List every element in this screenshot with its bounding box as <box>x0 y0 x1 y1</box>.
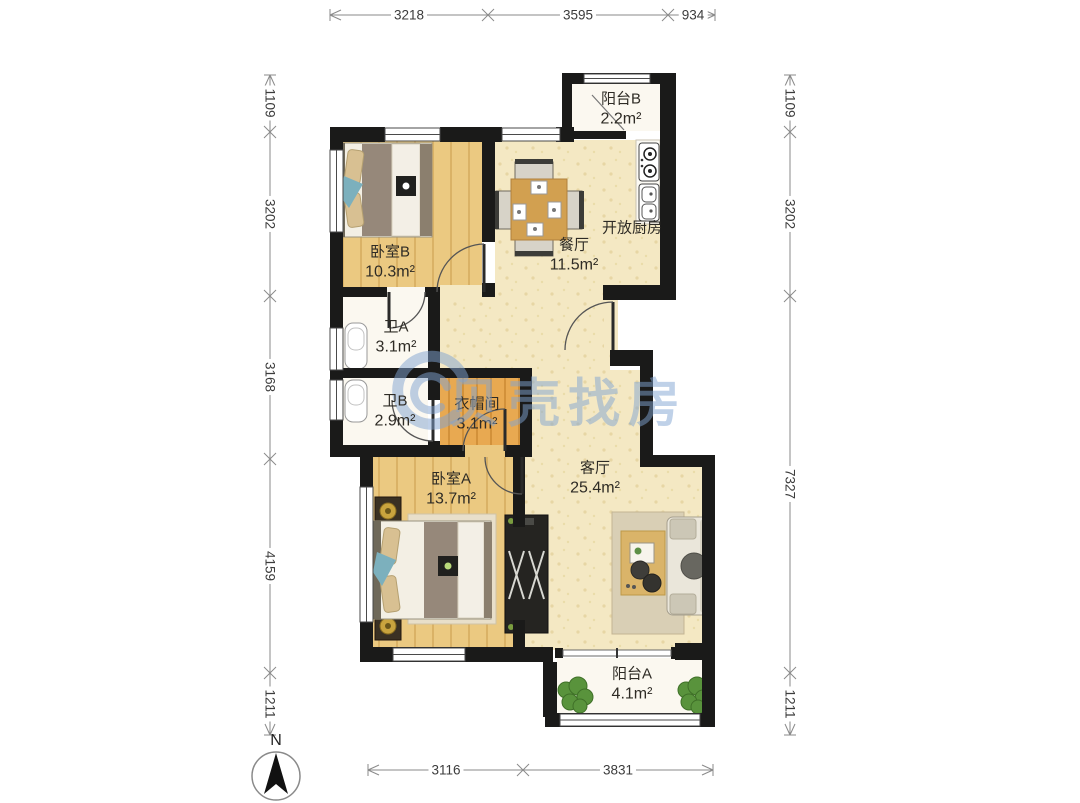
room-area: 2.9m² <box>375 411 416 431</box>
doorway-patch <box>604 300 618 350</box>
doorway-patch <box>387 287 425 297</box>
room-name: 卧室B <box>365 244 415 263</box>
dim-right-3: 7327 <box>783 466 798 502</box>
room-area: 13.7m² <box>426 489 476 509</box>
room-label-living: 客厅 25.4m² <box>570 460 620 499</box>
compass <box>252 752 300 800</box>
window <box>385 128 440 141</box>
room-label-dining: 餐厅 11.5m² <box>550 237 599 276</box>
room-area: 10.3m² <box>365 262 415 282</box>
dim-left-1: 1109 <box>263 85 278 120</box>
room-name: 开放厨房 <box>602 220 662 239</box>
room-name: 卫A <box>376 319 417 338</box>
dim-chain-bottom <box>368 764 713 776</box>
dim-chain-left <box>264 75 276 735</box>
window <box>360 487 373 622</box>
room-area: 2.2m² <box>601 109 642 129</box>
dim-right-4: 1211 <box>783 686 798 721</box>
stove <box>639 143 659 181</box>
dim-top-3: 934 <box>679 8 708 23</box>
room-name: 餐厅 <box>550 237 599 256</box>
bed-bedroom-a <box>373 497 496 640</box>
dim-left-5: 1211 <box>263 686 278 721</box>
doorway-patch <box>440 287 482 297</box>
room-name: 阳台A <box>612 666 653 685</box>
dim-top-1: 3218 <box>391 8 427 23</box>
bed-bedroom-b <box>337 143 432 237</box>
window <box>393 648 465 661</box>
window <box>502 128 560 141</box>
dim-top-2: 3595 <box>560 8 596 23</box>
room-name: 卫B <box>375 393 416 412</box>
dim-right-2: 3202 <box>783 196 798 232</box>
dim-bottom-2: 3831 <box>600 763 636 778</box>
room-label-bedroom-b: 卧室B 10.3m² <box>365 244 415 283</box>
sliding-door-sill <box>563 648 671 658</box>
dim-left-3: 3168 <box>263 359 278 395</box>
compass-north-label: N <box>270 732 282 750</box>
window <box>330 380 343 420</box>
floor-hall <box>440 285 610 373</box>
room-label-bath-a: 卫A 3.1m² <box>376 319 417 358</box>
room-label-balcony-a: 阳台A 4.1m² <box>612 666 653 705</box>
sink <box>639 184 659 221</box>
window <box>584 74 650 83</box>
room-label-balcony-b: 阳台B 2.2m² <box>601 91 642 130</box>
watermark-text: 贝壳找房 <box>448 362 688 437</box>
dim-left-2: 3202 <box>263 196 278 232</box>
window <box>330 328 343 370</box>
bath-b-fixture <box>345 380 367 422</box>
coffee-table <box>621 531 665 595</box>
bath-a-fixture <box>345 323 367 369</box>
room-label-bedroom-a: 卧室A 13.7m² <box>426 471 476 510</box>
dim-bottom-1: 3116 <box>428 763 463 778</box>
room-area: 11.5m² <box>550 255 599 275</box>
dim-left-4: 4159 <box>263 548 278 584</box>
wardrobe-tv-unit <box>505 515 548 633</box>
room-area: 4.1m² <box>612 684 653 704</box>
room-label-bath-b: 卫B 2.9m² <box>375 393 416 432</box>
room-name: 卧室A <box>426 471 476 490</box>
window <box>560 714 700 726</box>
dim-chain-top <box>330 9 715 21</box>
room-name: 阳台B <box>601 91 642 110</box>
room-label-kitchen: 开放厨房 <box>602 220 662 239</box>
room-name: 客厅 <box>570 460 620 479</box>
room-area: 3.1m² <box>376 337 417 357</box>
window <box>330 150 343 232</box>
floorplan-page: 阳台B 2.2m² 卧室B 10.3m² 餐厅 11.5m² 开放厨房 卫A 3… <box>0 0 1080 803</box>
dim-chain-right <box>784 75 796 735</box>
dim-right-1: 1109 <box>783 85 798 120</box>
room-area: 25.4m² <box>570 478 620 498</box>
